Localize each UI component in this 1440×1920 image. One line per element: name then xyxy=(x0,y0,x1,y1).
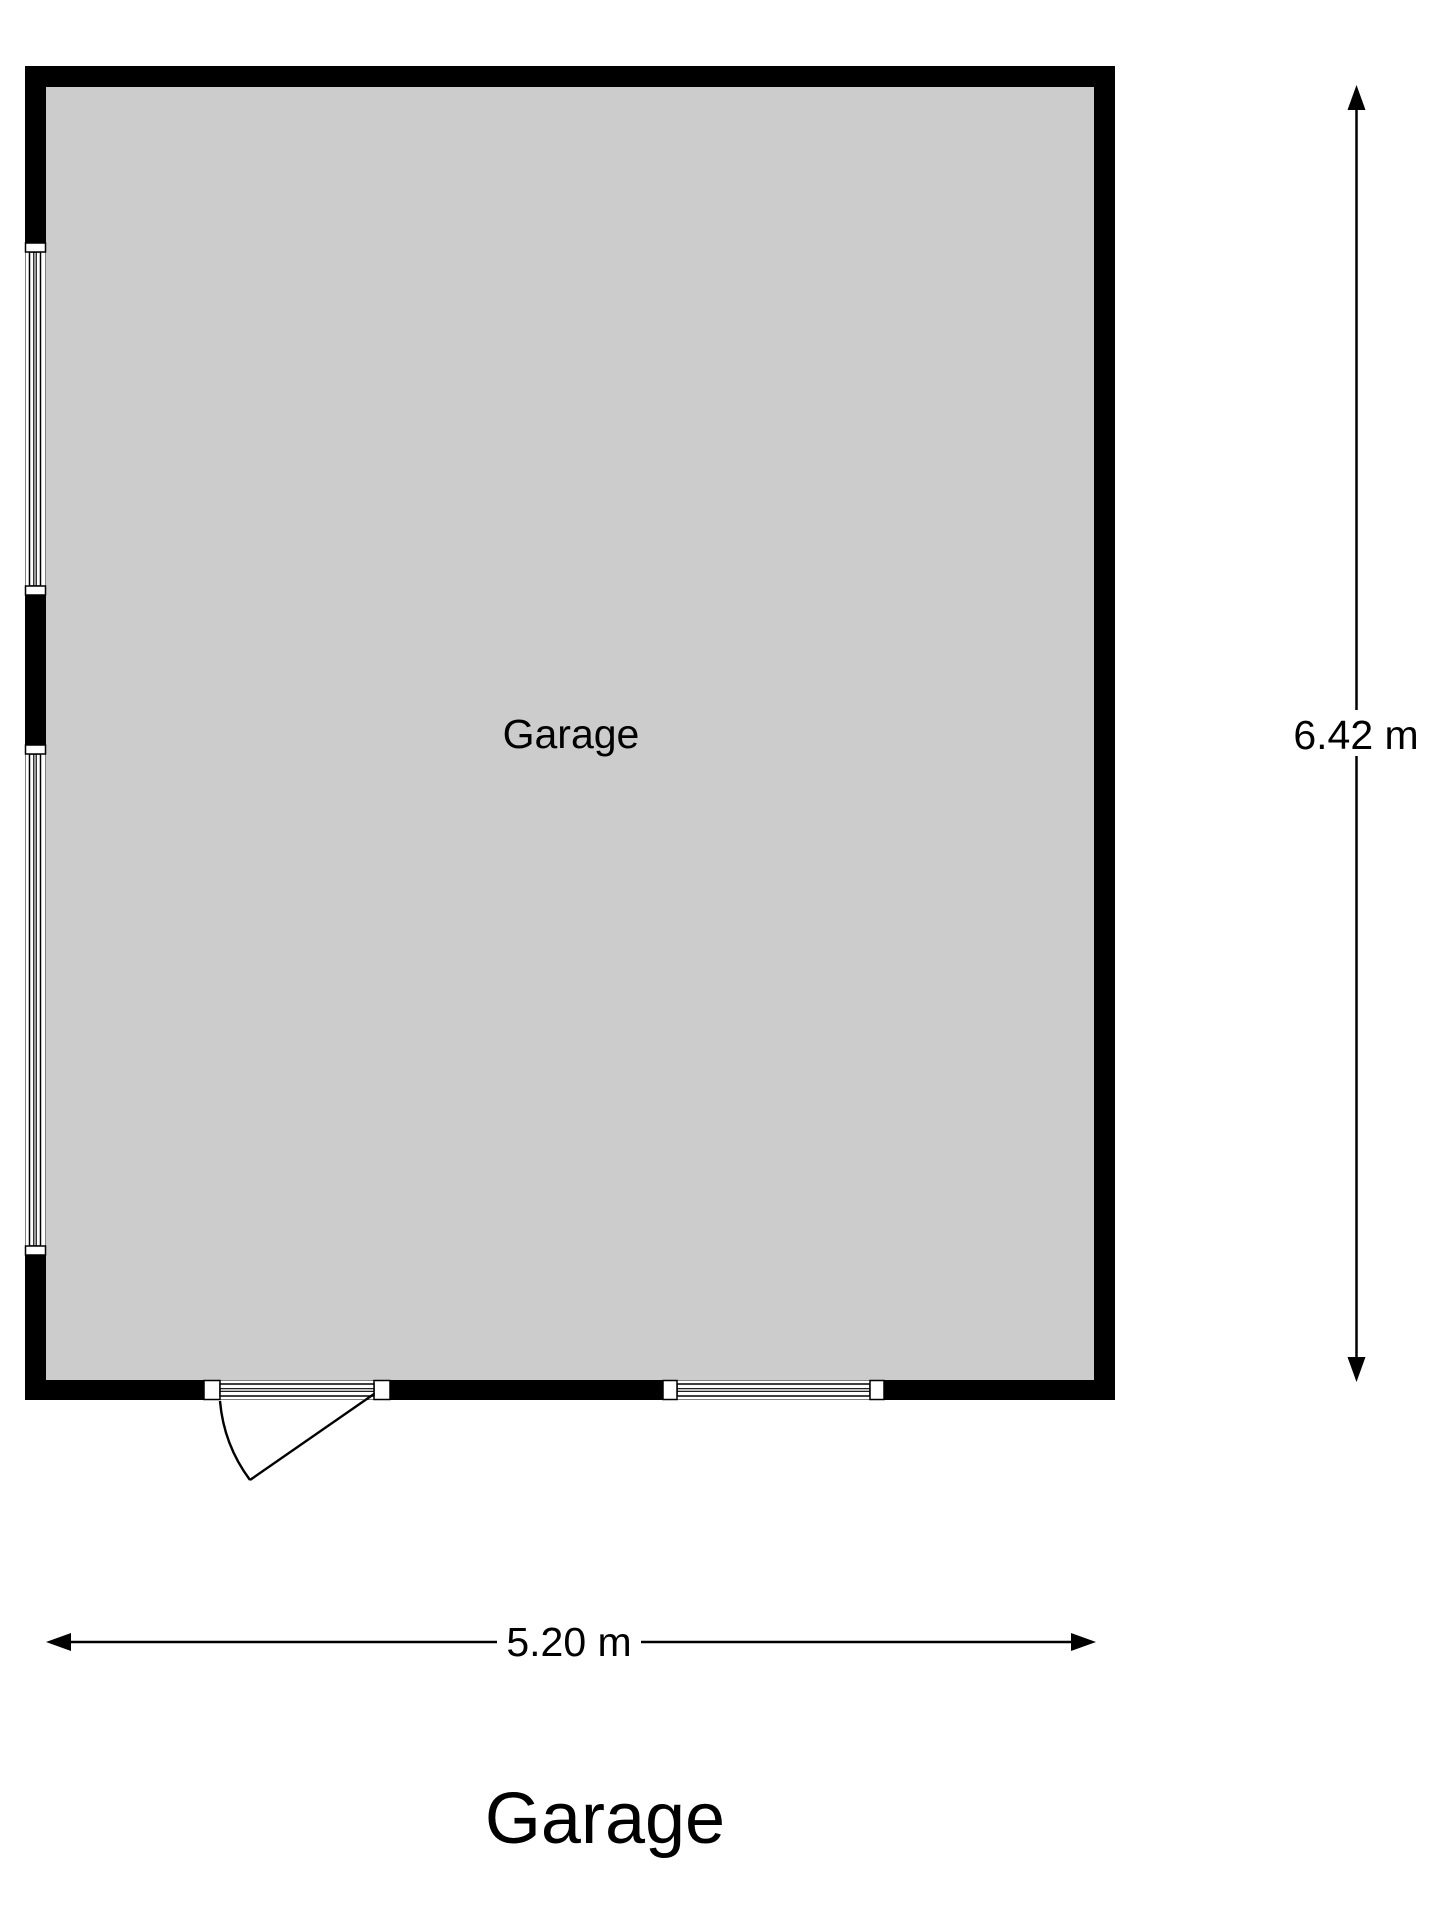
height-dimension-label: 6.42 m xyxy=(1293,712,1418,758)
window-sill xyxy=(870,1381,884,1400)
door-jamb xyxy=(374,1381,390,1400)
arrow-left-icon xyxy=(46,1633,71,1651)
entry-door xyxy=(204,1381,390,1481)
left-wall-window-upper xyxy=(26,243,46,595)
floor-plan-canvas: 6.42 m 5.20 m Garage Garage xyxy=(0,0,1440,1920)
bottom-wall-window xyxy=(663,1381,884,1400)
window-sill xyxy=(26,1246,46,1255)
floorplan-page: 6.42 m 5.20 m Garage Garage xyxy=(0,0,1440,1920)
room-label: Garage xyxy=(503,711,640,757)
arrow-up-icon xyxy=(1348,85,1366,110)
door-jamb xyxy=(204,1381,220,1400)
arrow-down-icon xyxy=(1348,1357,1366,1382)
window-sill xyxy=(26,586,46,595)
plan-title: Garage xyxy=(485,1779,725,1859)
left-wall-window-lower xyxy=(26,745,46,1255)
width-dimension-label: 5.20 m xyxy=(506,1619,631,1665)
arrow-right-icon xyxy=(1071,1633,1096,1651)
width-dimension: 5.20 m xyxy=(46,1619,1096,1665)
window-sill xyxy=(26,243,46,252)
height-dimension: 6.42 m xyxy=(1293,85,1418,1382)
door-leaf xyxy=(250,1394,374,1480)
window-sill xyxy=(26,745,46,754)
door-swing-arc xyxy=(220,1401,250,1480)
window-sill xyxy=(663,1381,677,1400)
door-threshold xyxy=(220,1384,374,1396)
